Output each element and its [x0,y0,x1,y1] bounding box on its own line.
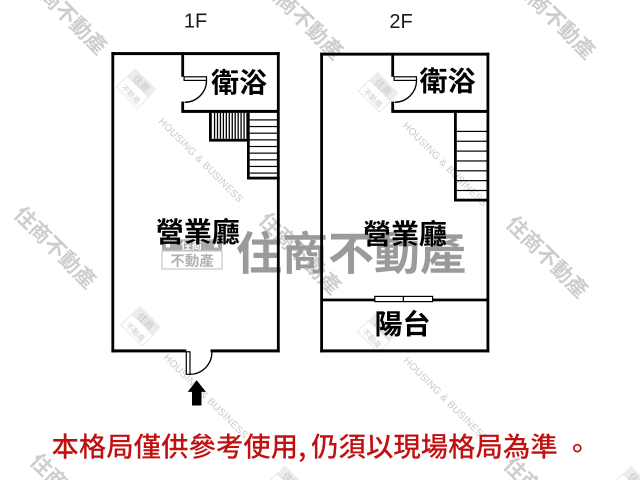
svg-text:2F: 2F [389,11,412,33]
svg-text:1F: 1F [184,11,207,33]
